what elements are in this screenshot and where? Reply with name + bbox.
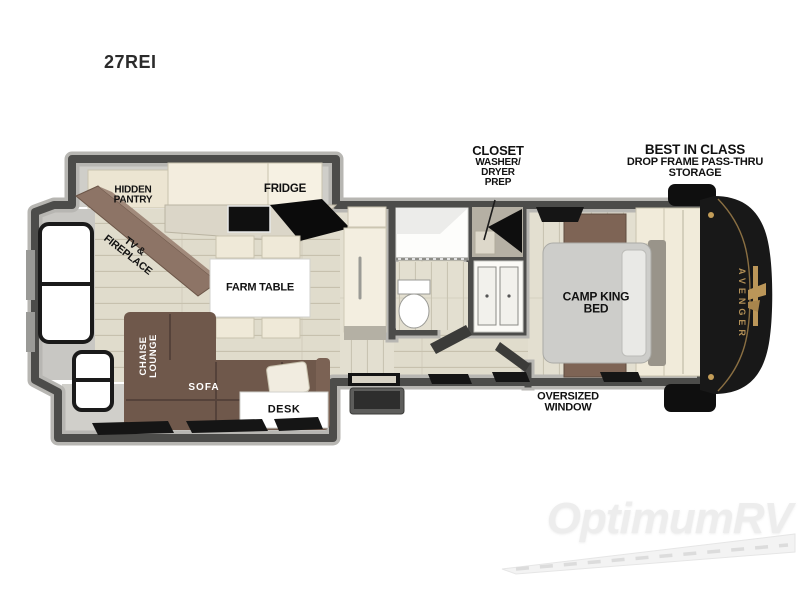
oversized-window-glass (492, 372, 530, 382)
closet-callout: CLOSET WASHER/ DRYER PREP (455, 144, 541, 189)
model-title: 27REI (104, 52, 157, 73)
camp-king-bed-label: CAMP KING BED (550, 291, 642, 316)
cooktop (228, 206, 270, 232)
best-in-class-callout: BEST IN CLASS DROP FRAME PASS-THRU STORA… (600, 143, 790, 180)
farm-table-label: FARM TABLE (225, 282, 295, 293)
floorplan-page: 27REI CLOSET WASHER/ DRYER PREP BEST IN … (0, 0, 800, 600)
entry (348, 373, 404, 414)
closet-column (472, 207, 523, 332)
oversized-window-label: OVERSIZED WINDOW (525, 392, 611, 415)
closet-callout-title: CLOSET (455, 144, 541, 158)
fridge-label: FRIDGE (264, 184, 306, 196)
sofa-label: SOFA (188, 383, 219, 393)
chaise-lounge-label: CHAISE LOUNGE (139, 327, 159, 385)
desk-chair (266, 361, 310, 396)
toilet (398, 280, 430, 294)
hidden-pantry-label: HIDDEN PANTRY (97, 186, 169, 207)
best-in-class-title: BEST IN CLASS (600, 143, 790, 157)
desk-label: DESK (268, 404, 301, 415)
island-cabinet (344, 228, 386, 332)
optimumrv-watermark: OptimumRV (470, 494, 792, 544)
avenger-brand-badge: AVENGER (733, 252, 747, 356)
